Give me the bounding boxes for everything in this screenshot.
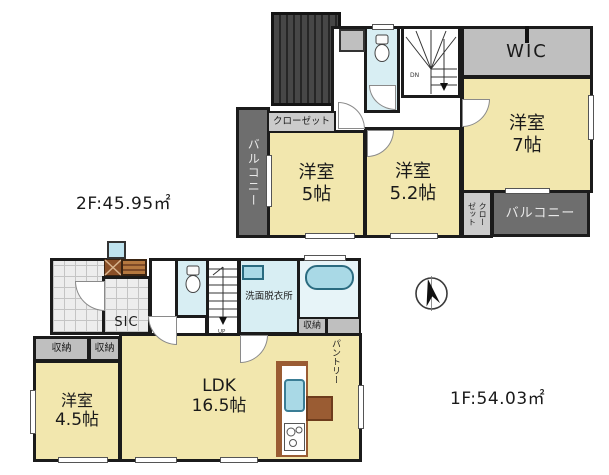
1f-ldk-name: LDK (164, 376, 274, 396)
north-arrow-icon (413, 275, 450, 312)
2f-window-toilet (372, 24, 394, 30)
1f-sic: SIC (102, 276, 151, 335)
2f-wic-label: WIC (506, 41, 548, 63)
toilet-icon (183, 265, 203, 295)
2f-closet-side-label-left: ゼット (467, 202, 477, 226)
2f-bedroom-5-name: 洋室 (299, 162, 335, 184)
kitchen-stove-icon (284, 423, 305, 451)
2f-bedroom-5-size: 5帖 (302, 184, 331, 206)
2f-closet-top-label: クローゼット (273, 116, 330, 127)
1f-ldk-size: 16.5帖 (164, 396, 274, 416)
stairs-up-icon: UP (209, 261, 237, 335)
1f-window-bath (304, 255, 346, 261)
1f-window-ldk-bottom-left (135, 457, 177, 463)
1f-bathroom (297, 258, 361, 325)
1f-window-bed45-bottom (58, 457, 108, 463)
1f-exterior-basin (107, 241, 126, 259)
2f-hall-cabinet (339, 29, 365, 52)
floorplan-canvas: バルコニー DN WIC (0, 0, 609, 475)
2f-balcony-left: バルコニー (236, 107, 270, 238)
2f-closet-side-label-right: クロー (478, 202, 488, 226)
2f-area-label: 2F:45.95㎡ (76, 189, 171, 214)
2f-bedroom-7-size: 7帖 (512, 135, 541, 157)
1f-storage-left-a: 収納 (33, 336, 90, 362)
2f-stairs: DN (401, 26, 461, 98)
2f-wic-partition (525, 26, 529, 43)
1f-storage-left-a-label: 収納 (52, 343, 72, 355)
2f-balcony-door (266, 155, 272, 207)
1f-bedroom-45-size: 4.5帖 (55, 410, 99, 430)
1f-storage-right-label: 収納 (303, 321, 321, 332)
1f-stairs: UP (206, 258, 240, 338)
1f-shoe-shelf (121, 259, 147, 276)
2f-window-bed52 (390, 233, 438, 239)
2f-window-bed7-right (588, 95, 594, 140)
2f-window-bed5 (305, 233, 355, 239)
1f-storage-left-b: 収納 (88, 336, 121, 362)
2f-bedroom-5: 洋室 5帖 (267, 130, 366, 238)
2f-window-bed7-bottom (505, 188, 550, 194)
2f-balcony-right: バルコニー (491, 190, 590, 237)
1f-sic-label: SIC (114, 315, 138, 331)
2f-bedroom-52-size: 5.2帖 (390, 183, 437, 205)
2f-closet-side: ゼット クロー (461, 190, 493, 238)
washbasin-icon (242, 265, 264, 280)
2f-balcony-left-label: バルコニー (246, 138, 260, 208)
1f-window-bed45-left (30, 390, 36, 434)
2f-bedroom-7: 洋室 7帖 (461, 76, 593, 193)
1f-area-label: 1F:54.03㎡ (450, 384, 545, 409)
2f-balcony-right-label: バルコニー (506, 206, 576, 222)
1f-washroom-label: 洗面脱衣所 (245, 291, 293, 302)
1f-bedroom-45: 洋室 4.5帖 (33, 360, 121, 462)
1f-shoe-box-icon (104, 259, 122, 276)
2f-stairs-label: DN (410, 72, 419, 79)
kitchen-sink-icon (284, 379, 305, 412)
2f-closet-top: クローゼット (267, 111, 336, 133)
2f-bedroom-52-name: 洋室 (395, 161, 431, 183)
stairs-down-icon: DN (404, 29, 458, 95)
1f-pantry-label: パントリー (329, 339, 342, 384)
1f-ldk-label: LDK 16.5帖 (164, 376, 274, 417)
toilet-icon (372, 34, 392, 64)
2f-bedroom-7-name: 洋室 (509, 113, 545, 135)
bathtub-icon (305, 265, 354, 290)
kitchen-island (306, 396, 333, 421)
1f-storage-left-b-label: 収納 (95, 343, 115, 355)
1f-bedroom-45-name: 洋室 (61, 391, 93, 410)
1f-window-ldk-bottom-right (220, 457, 258, 463)
1f-window-ldk-right (358, 385, 364, 429)
